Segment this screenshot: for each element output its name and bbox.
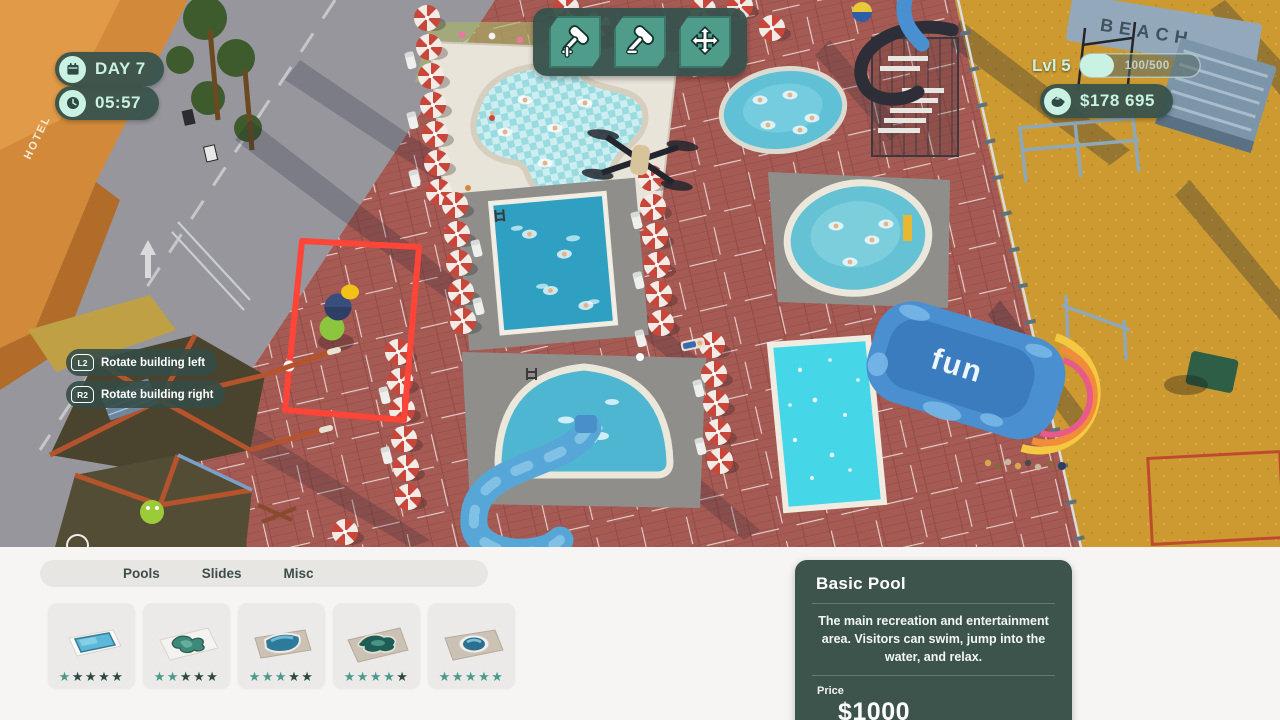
level-indicator: Lvl 5 100/500 (1032, 53, 1201, 78)
piggy-bank-icon (1044, 88, 1071, 115)
rotate-right-hint: R2 Rotate building right (66, 381, 225, 408)
star-rating: ★★★★★ (154, 670, 220, 683)
item-card-lagoon-pool[interactable]: ★★★★★ (333, 603, 420, 688)
basic-pool-thumbnail (55, 620, 129, 666)
item-card-rounded-pool[interactable]: ★★★★★ (238, 603, 325, 688)
hammer-plus-icon (558, 25, 592, 59)
game-viewport[interactable]: HOTEL (0, 0, 1280, 547)
item-list: ★★★★★ ★★★★★ ★★★★★ (48, 603, 515, 688)
r2-trigger-icon: R2 (71, 386, 94, 403)
star-rating: ★★★★★ (59, 670, 125, 683)
xp-value: 100/500 (1125, 53, 1170, 78)
rect-pool (456, 178, 649, 351)
price-label: Price (817, 685, 1051, 697)
clock-icon (59, 90, 86, 117)
xp-progress-bar: 100/500 (1079, 53, 1201, 78)
rotate-right-label: Rotate building right (101, 389, 213, 401)
divider (812, 603, 1055, 604)
price-value: $1000 (838, 698, 1051, 720)
calendar-icon (59, 56, 86, 83)
tab-pools[interactable]: Pools (102, 566, 181, 581)
level-label: Lvl 5 (1032, 56, 1071, 76)
item-detail-card: Basic Pool The main recreation and enter… (795, 560, 1072, 720)
tab-slides[interactable]: Slides (181, 566, 263, 581)
detail-title: Basic Pool (816, 574, 1051, 594)
rotate-left-hint: L2 Rotate building left (66, 349, 217, 376)
rounded-pool-thumbnail (245, 620, 319, 666)
time-indicator: 05:57 (55, 86, 159, 120)
wave-pool-thumbnail (150, 620, 224, 666)
round-pool-right (768, 172, 950, 308)
tab-misc[interactable]: Misc (263, 566, 335, 581)
rotate-left-label: Rotate building left (101, 357, 205, 369)
demolish-button[interactable] (614, 16, 666, 68)
build-button[interactable] (549, 16, 601, 68)
star-rating: ★★★★★ (344, 670, 410, 683)
item-card-round-pool[interactable]: ★★★★★ (428, 603, 515, 688)
round-pool-thumbnail (435, 620, 509, 666)
build-toolbar (533, 8, 747, 76)
item-card-wave-pool[interactable]: ★★★★★ (143, 603, 230, 688)
move-button[interactable] (679, 16, 731, 68)
star-rating: ★★★★★ (439, 670, 505, 683)
lagoon-pool-thumbnail (340, 620, 414, 666)
star-rating: ★★★★★ (249, 670, 315, 683)
hammer-minus-icon (623, 25, 657, 59)
category-tabs: Pools Slides Misc (40, 560, 488, 587)
money-indicator: $178 695 (1040, 84, 1173, 118)
money-value: $178 695 (1080, 91, 1155, 111)
divider (812, 675, 1055, 676)
game-screen: HOTEL (0, 0, 1280, 720)
move-arrows-icon (688, 25, 722, 59)
day-indicator: DAY 7 (55, 52, 164, 86)
xp-progress-fill (1080, 54, 1114, 77)
l2-trigger-icon: L2 (71, 354, 94, 371)
detail-description: The main recreation and entertainment ar… (816, 613, 1051, 666)
day-label: DAY 7 (95, 59, 146, 79)
time-label: 05:57 (95, 93, 141, 113)
item-card-basic-pool[interactable]: ★★★★★ (48, 603, 135, 688)
build-panel: Pools Slides Misc ★★★★★ ★★★★★ (0, 547, 1280, 720)
